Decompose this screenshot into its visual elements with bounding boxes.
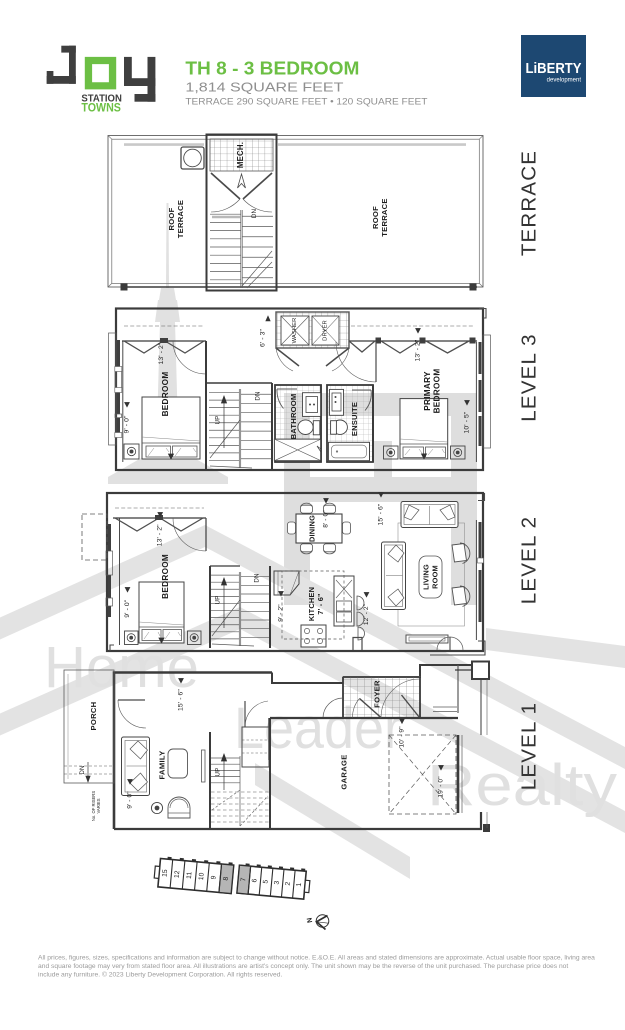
svg-text:15: 15: [161, 869, 169, 877]
svg-text:LIVING: LIVING: [422, 564, 431, 590]
svg-text:development: development: [547, 78, 582, 84]
svg-text:and square footage may very fr: and square footage may very from stated …: [38, 963, 568, 970]
svg-text:BEDROOM: BEDROOM: [161, 372, 170, 417]
svg-text:LiBERTY: LiBERTY: [526, 61, 582, 77]
svg-text:LEVEL 2: LEVEL 2: [518, 516, 541, 605]
svg-text:DN: DN: [254, 573, 261, 582]
svg-text:8' - 0": 8' - 0": [323, 510, 330, 528]
svg-text:ENSUITE: ENSUITE: [350, 402, 359, 436]
svg-text:GARAGE: GARAGE: [340, 754, 349, 789]
svg-text:TERRACE: TERRACE: [176, 200, 185, 238]
svg-text:13' - 2": 13' - 2": [158, 342, 165, 364]
svg-text:10' - 5": 10' - 5": [464, 411, 471, 433]
svg-text:DN: DN: [80, 766, 86, 775]
svg-text:UP: UP: [215, 768, 222, 777]
svg-text:TERRACE: TERRACE: [380, 198, 389, 236]
svg-text:BEDROOM: BEDROOM: [432, 369, 441, 414]
svg-text:TERRACE 290 SQUARE FEET • 120: TERRACE 290 SQUARE FEET • 120 SQUARE FEE…: [185, 97, 428, 107]
svg-text:1,814 SQUARE FEET: 1,814 SQUARE FEET: [185, 80, 343, 95]
svg-text:PRIMARY: PRIMARY: [423, 371, 432, 411]
svg-text:UP: UP: [215, 416, 222, 425]
svg-text:TH 8 - 3 BEDROOM: TH 8 - 3 BEDROOM: [185, 59, 359, 79]
svg-text:ROOF: ROOF: [371, 206, 380, 229]
svg-text:15' - 6": 15' - 6": [178, 689, 185, 711]
svg-text:VARIES: VARIES: [96, 798, 101, 813]
svg-text:BATHROOM: BATHROOM: [289, 394, 298, 440]
svg-text:DN: DN: [255, 391, 262, 400]
svg-text:9' - 0": 9' - 0": [127, 791, 134, 809]
svg-text:DRYER: DRYER: [323, 320, 329, 341]
svg-text:10' - 9": 10' - 9": [399, 726, 406, 748]
svg-text:FAMILY: FAMILY: [158, 751, 167, 780]
svg-text:Home: Home: [44, 635, 199, 700]
svg-text:TOWNS: TOWNS: [81, 103, 121, 115]
svg-text:KITCHEN: KITCHEN: [307, 587, 316, 621]
svg-text:13' - 2": 13' - 2": [157, 524, 164, 546]
svg-text:WASHER: WASHER: [292, 318, 298, 344]
svg-text:13' - 2": 13' - 2": [415, 339, 422, 361]
svg-text:PORCH: PORCH: [89, 702, 98, 731]
svg-text:BEDROOM: BEDROOM: [161, 554, 170, 599]
svg-text:ROOF: ROOF: [167, 207, 176, 230]
svg-text:LEVEL 3: LEVEL 3: [518, 333, 541, 422]
svg-text:9' - 2": 9' - 2": [278, 604, 285, 622]
svg-text:DINING: DINING: [308, 515, 317, 542]
svg-text:9' - 0": 9' - 0": [124, 415, 131, 433]
svg-text:10: 10: [198, 872, 206, 880]
svg-text:6' - 3": 6' - 3": [260, 329, 267, 347]
svg-text:UP: UP: [215, 596, 222, 605]
svg-text:include any furniture. © 2023: include any furniture. © 2023 Liberty De…: [38, 971, 282, 979]
svg-text:DN: DN: [251, 209, 258, 218]
svg-text:15' - 6": 15' - 6": [378, 503, 385, 525]
svg-text:12: 12: [174, 870, 182, 878]
svg-text:ROOM: ROOM: [431, 565, 440, 589]
svg-text:19' - 0": 19' - 0": [438, 776, 445, 798]
svg-text:TERRACE: TERRACE: [518, 150, 541, 256]
svg-text:All prices, figures, sizes, sp: All prices, figures, sizes, specificatio…: [38, 955, 595, 962]
svg-text:7' - 6": 7' - 6": [316, 593, 325, 615]
svg-text:FOYER: FOYER: [373, 680, 382, 708]
svg-text:12' - 2": 12' - 2": [363, 603, 370, 625]
svg-text:9' - 0": 9' - 0": [124, 599, 131, 617]
svg-text:MECH.: MECH.: [236, 142, 245, 168]
svg-text:11: 11: [186, 871, 194, 879]
svg-text:LEVEL 1: LEVEL 1: [518, 702, 541, 791]
